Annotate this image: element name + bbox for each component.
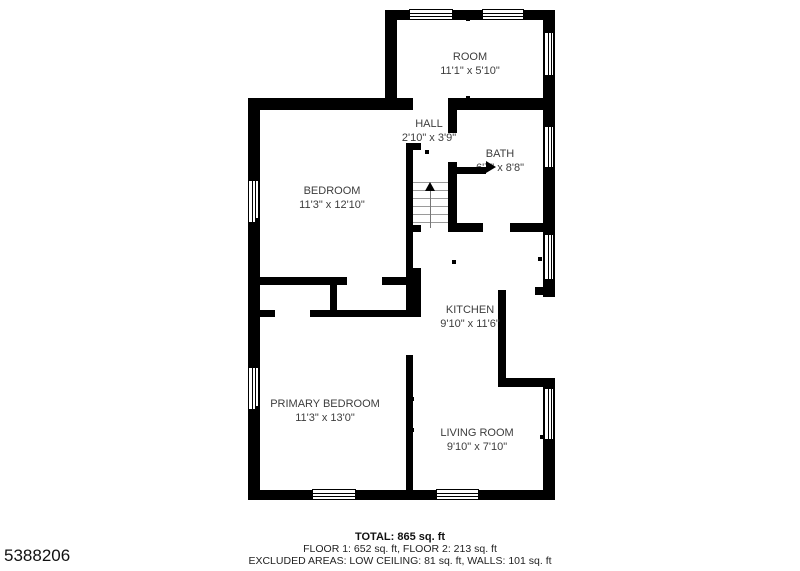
room-name: BEDROOM — [299, 184, 365, 198]
window — [409, 9, 453, 20]
window — [482, 9, 524, 20]
wall — [498, 378, 555, 387]
stair-up-arrow-icon — [425, 182, 435, 191]
door-tick — [538, 257, 542, 261]
wall — [406, 143, 413, 268]
excluded-areas: EXCLUDED AREAS: LOW CEILING: 81 sq. ft, … — [0, 556, 800, 568]
window — [544, 388, 554, 440]
window — [544, 234, 554, 280]
floor-plan: ROOM 11'1" x 5'10" HALL 2'10" x 3'9" BAT… — [0, 0, 800, 571]
area-summary: TOTAL: 865 sq. ft FLOOR 1: 652 sq. ft, F… — [0, 531, 800, 567]
window — [312, 489, 356, 500]
wall — [510, 223, 543, 232]
wall — [382, 277, 406, 285]
door-tick — [410, 397, 414, 401]
window — [544, 32, 554, 76]
wall — [248, 490, 555, 500]
wall — [248, 310, 275, 317]
room-name: ROOM — [440, 50, 500, 64]
room-dimensions: 11'3" x 13'0" — [270, 411, 380, 425]
room-dimensions: 11'3" x 12'10" — [299, 198, 365, 212]
room-dimensions: 9'10" x 7'10" — [440, 440, 513, 454]
room-dimensions: 2'10" x 3'9" — [402, 131, 456, 145]
room-label-kitchen: KITCHEN 9'10" x 11'6" — [440, 303, 500, 331]
wall — [406, 268, 421, 317]
room-name: BATH — [476, 147, 524, 161]
wall — [385, 18, 397, 100]
arrow-icon — [486, 161, 496, 173]
room-dimensions: 9'10" x 11'6" — [440, 317, 500, 331]
wall — [406, 355, 413, 490]
room-name: HALL — [402, 117, 456, 131]
stair-direction-line — [430, 186, 431, 228]
wall — [448, 167, 486, 174]
room-name: PRIMARY BEDROOM — [270, 397, 380, 411]
room-dimensions: 11'1" x 5'10" — [440, 64, 500, 78]
door-tick — [256, 218, 260, 222]
room-name: LIVING ROOM — [440, 426, 513, 440]
window — [248, 180, 259, 223]
wall — [535, 287, 543, 295]
door-tick — [466, 96, 470, 100]
wall — [448, 223, 483, 232]
door-tick — [410, 428, 414, 432]
floor-areas: FLOOR 1: 652 sq. ft, FLOOR 2: 213 sq. ft — [0, 544, 800, 556]
room-label-room: ROOM 11'1" x 5'10" — [440, 50, 500, 78]
door-tick — [425, 150, 429, 154]
room-label-living-room: LIVING ROOM 9'10" x 7'10" — [440, 426, 513, 454]
room-label-hall: HALL 2'10" x 3'9" — [402, 117, 456, 145]
wall — [310, 310, 406, 317]
window — [248, 367, 259, 410]
window — [436, 489, 479, 500]
door-tick — [540, 435, 544, 439]
room-label-primary-bedroom: PRIMARY BEDROOM 11'3" x 13'0" — [270, 397, 380, 425]
room-label-bedroom: BEDROOM 11'3" x 12'10" — [299, 184, 365, 212]
wall — [330, 277, 337, 317]
staircase — [413, 182, 448, 228]
wall — [248, 110, 260, 500]
listing-number: 5388206 — [4, 546, 70, 566]
door-tick — [466, 17, 470, 21]
door-tick — [452, 260, 456, 264]
door-tick — [330, 105, 334, 109]
room-name: KITCHEN — [440, 303, 500, 317]
wall — [448, 98, 555, 110]
door-tick — [256, 406, 260, 410]
window — [544, 126, 554, 168]
